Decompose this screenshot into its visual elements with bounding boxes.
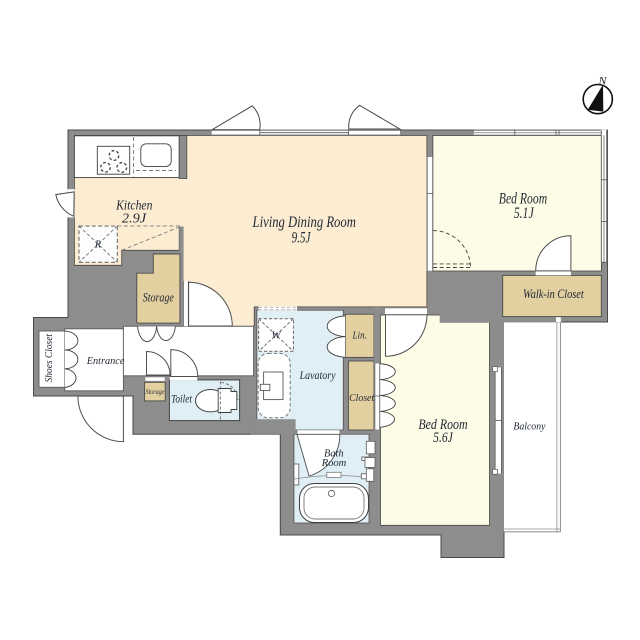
svg-text:Balcony: Balcony [513,421,545,432]
svg-text:5.6J: 5.6J [433,430,454,446]
svg-text:Entrance: Entrance [86,355,125,367]
svg-text:9.5J: 9.5J [292,229,312,246]
svg-text:Closet: Closet [349,392,375,404]
svg-text:Toilet: Toilet [171,394,193,406]
svg-text:R: R [94,239,101,250]
svg-text:Storage: Storage [143,290,174,304]
svg-text:Storage: Storage [145,388,164,396]
svg-text:2.9J: 2.9J [122,212,147,227]
svg-text:Room: Room [321,457,347,469]
svg-text:Walk-in Closet: Walk-in Closet [523,287,584,301]
svg-text:Shoes Closet: Shoes Closet [44,333,55,382]
svg-text:Lin.: Lin. [352,331,367,342]
svg-text:W: W [272,331,282,342]
svg-text:N: N [597,74,607,88]
svg-text:5.1J: 5.1J [514,205,535,222]
svg-text:Lavatory: Lavatory [299,370,337,382]
